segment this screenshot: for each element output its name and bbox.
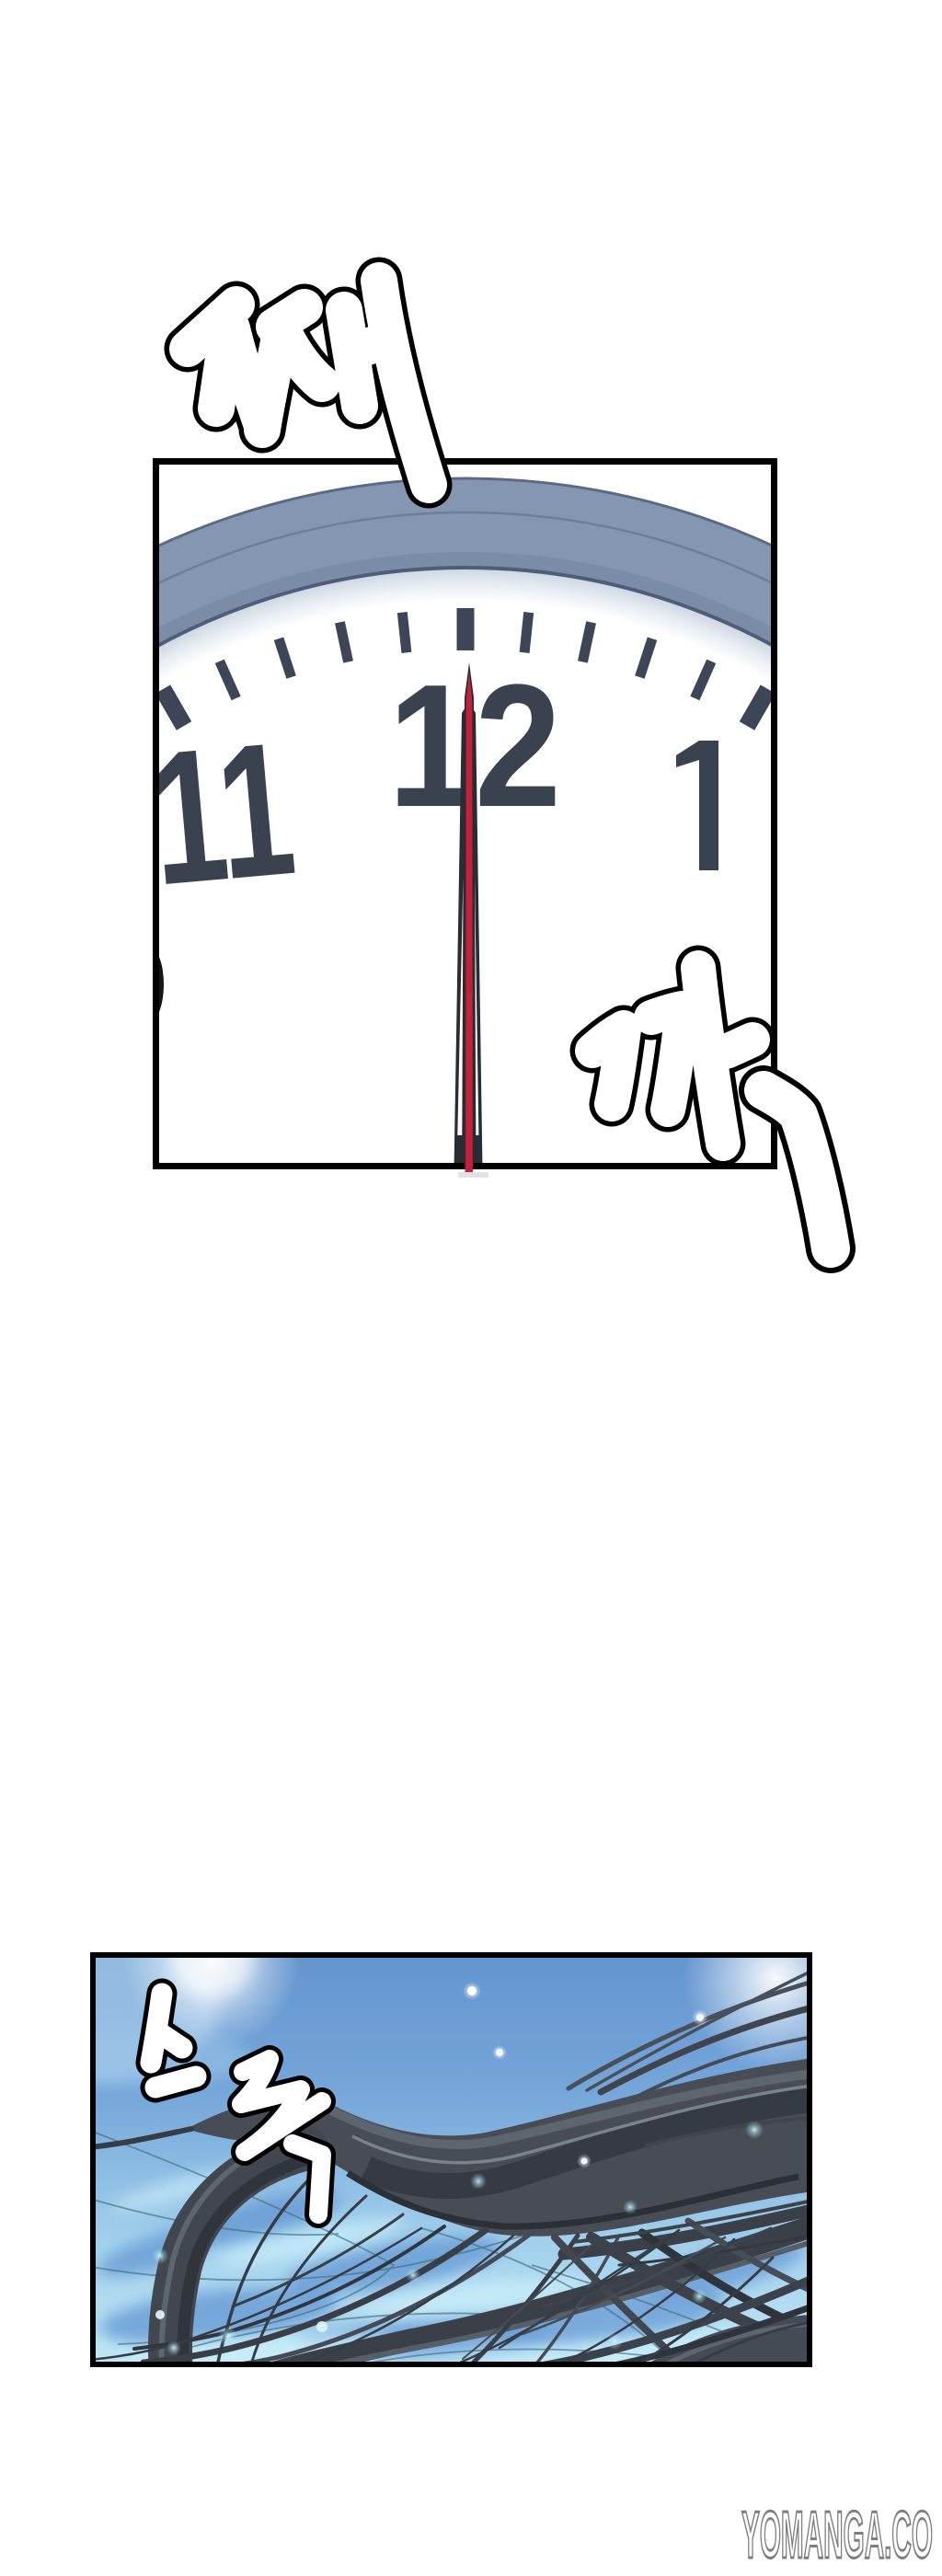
svg-text:YOMANGA.CO: YOMANGA.CO [741, 2499, 933, 2572]
